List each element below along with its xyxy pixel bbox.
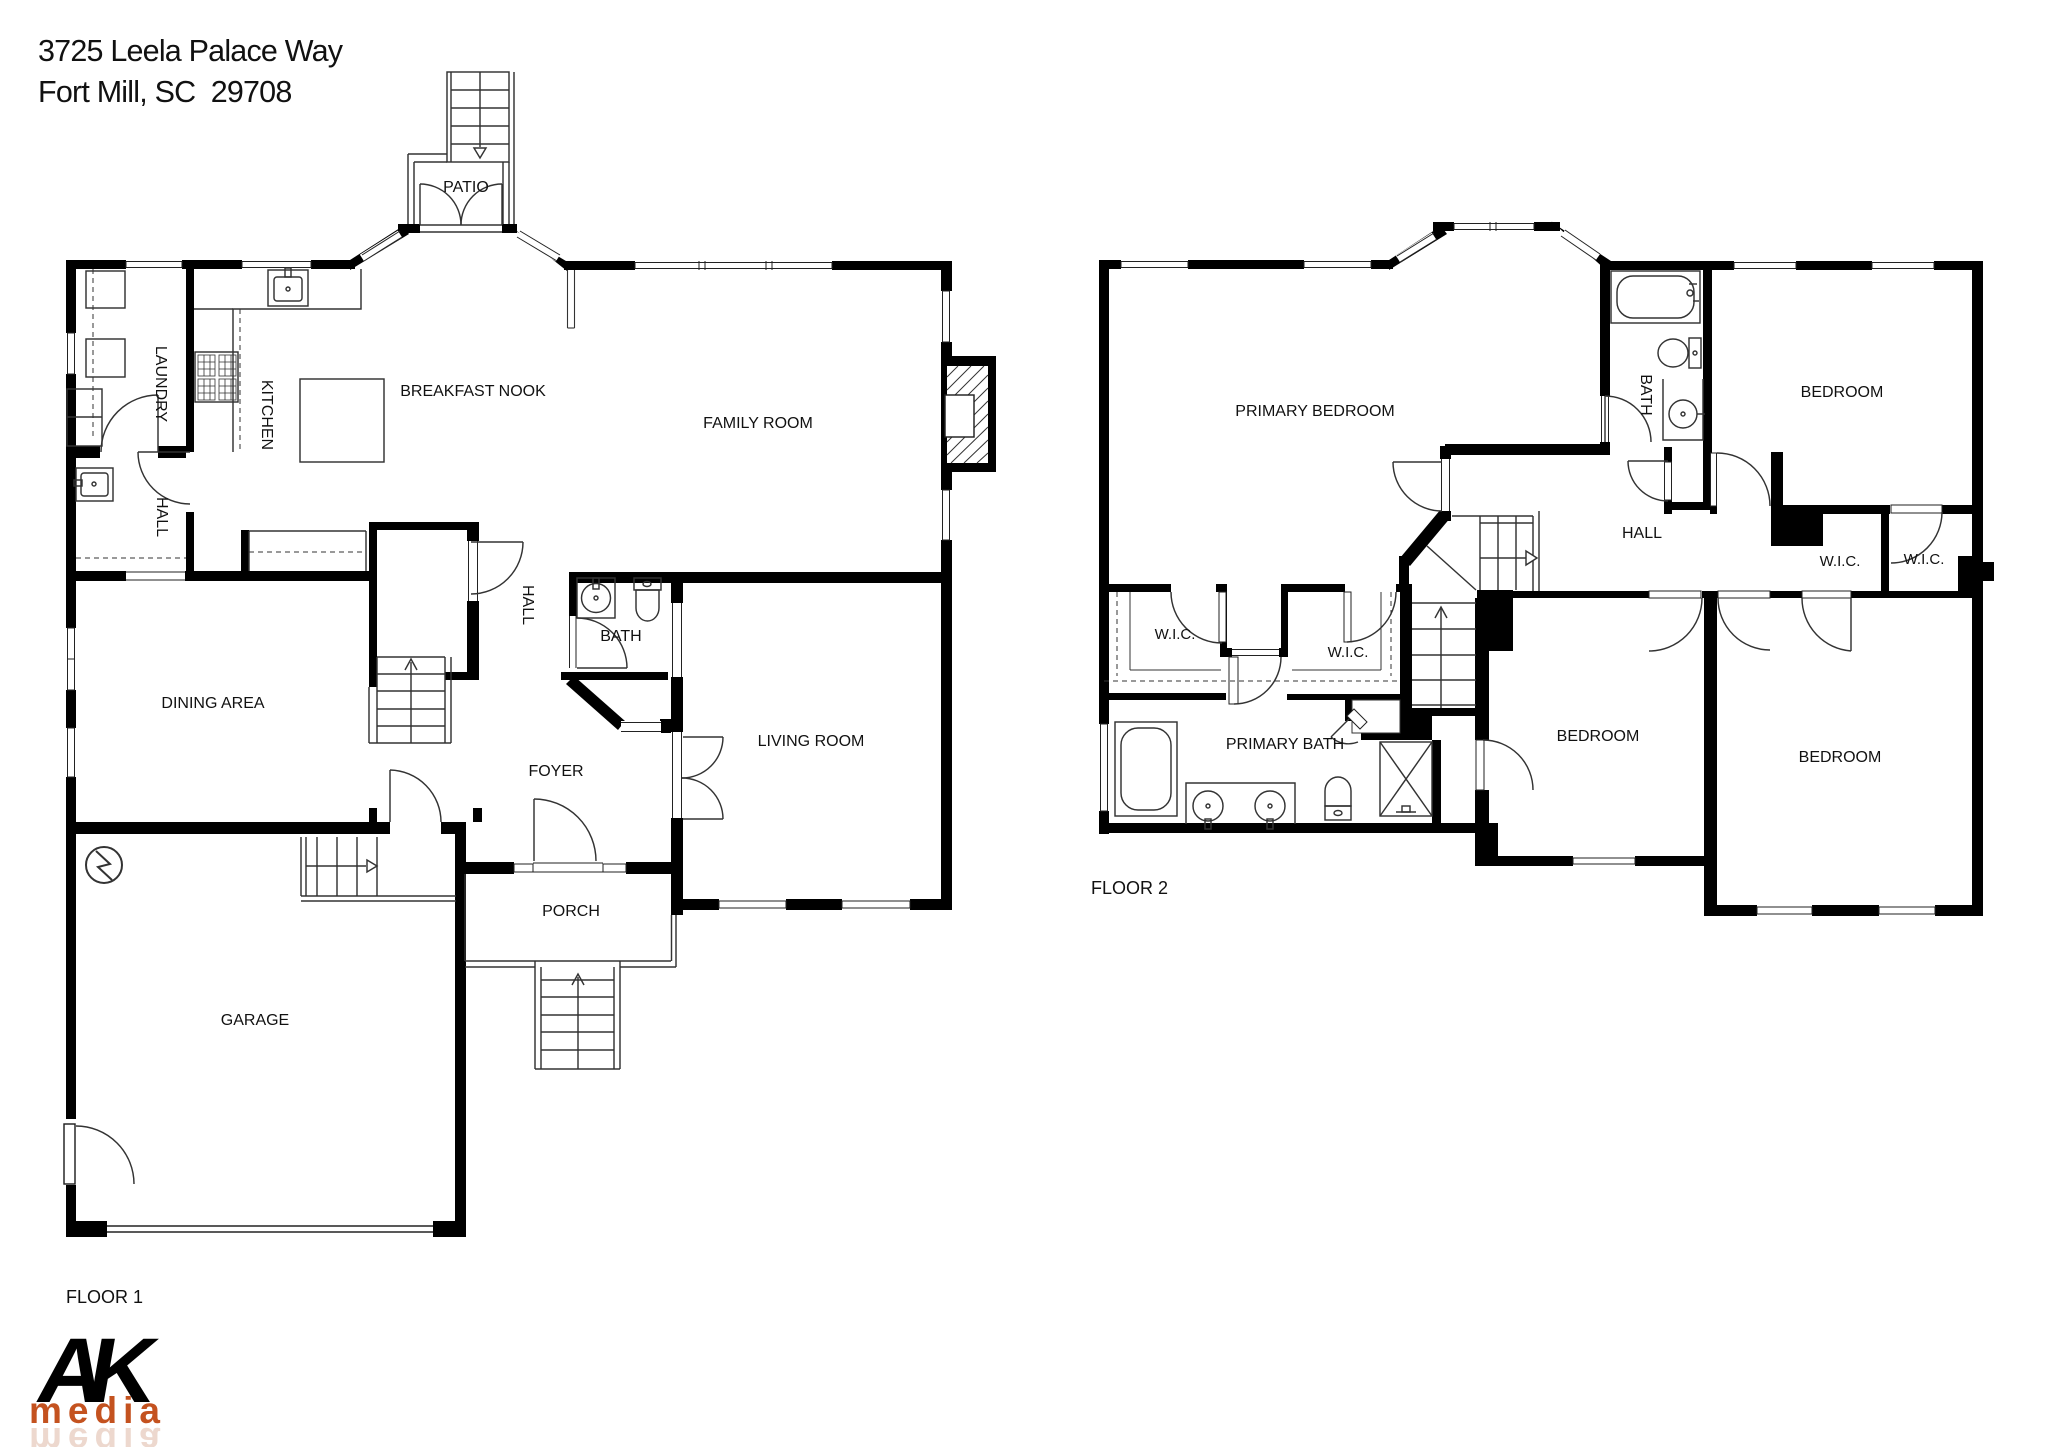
svg-text:3725 Leela Palace Way: 3725 Leela Palace Way [38,34,344,68]
svg-text:BATH: BATH [600,628,641,645]
svg-text:BREAKFAST NOOK: BREAKFAST NOOK [400,383,546,400]
svg-text:Fort Mill, SC 29708: Fort Mill, SC 29708 [38,75,292,109]
svg-text:GARAGE: GARAGE [221,1012,289,1029]
svg-text:W.I.C.: W.I.C. [1155,626,1196,643]
svg-text:PRIMARY BEDROOM: PRIMARY BEDROOM [1235,403,1394,420]
svg-text:FLOOR 2: FLOOR 2 [1091,878,1168,898]
svg-text:W.I.C.: W.I.C. [1820,553,1861,570]
svg-text:BEDROOM: BEDROOM [1799,749,1882,766]
svg-text:BATH: BATH [1637,374,1654,415]
svg-text:HALL: HALL [519,585,536,625]
svg-text:DINING AREA: DINING AREA [161,695,264,712]
svg-text:LIVING ROOM: LIVING ROOM [758,733,865,750]
svg-text:LAUNDRY: LAUNDRY [152,346,169,423]
svg-text:media: media [29,1420,166,1447]
svg-text:BEDROOM: BEDROOM [1557,728,1640,745]
svg-text:HALL: HALL [1622,525,1662,542]
svg-text:KITCHEN: KITCHEN [258,380,275,450]
svg-text:HALL: HALL [153,497,170,537]
svg-text:FLOOR 1: FLOOR 1 [66,1287,143,1307]
svg-text:FOYER: FOYER [528,763,583,780]
svg-text:BEDROOM: BEDROOM [1801,384,1884,401]
svg-text:W.I.C.: W.I.C. [1904,551,1945,568]
svg-text:PRIMARY BATH: PRIMARY BATH [1226,736,1344,753]
svg-text:PORCH: PORCH [542,903,600,920]
svg-text:PATIO: PATIO [443,179,489,196]
svg-text:W.I.C.: W.I.C. [1328,644,1369,661]
svg-text:FAMILY ROOM: FAMILY ROOM [703,415,813,432]
